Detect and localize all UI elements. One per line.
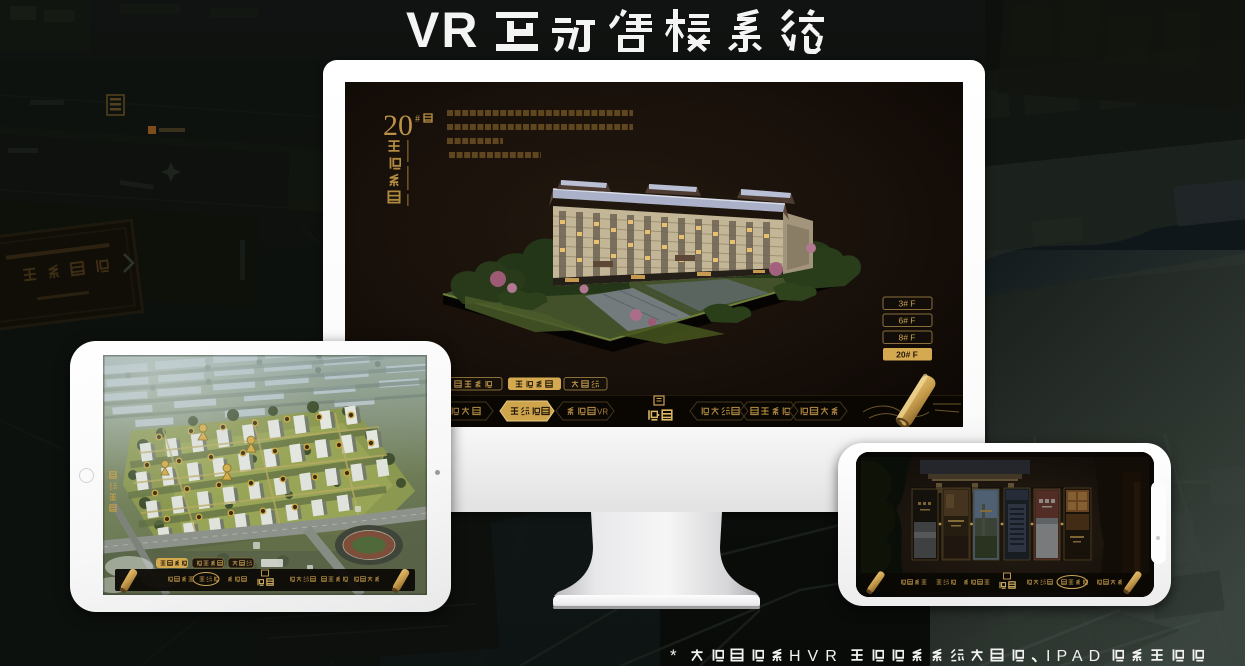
svg-text:6# F: 6# F bbox=[898, 316, 915, 326]
svg-text:20: 20 bbox=[383, 109, 413, 142]
svg-text:VR: VR bbox=[406, 2, 479, 58]
svg-text:3# F: 3# F bbox=[898, 299, 915, 309]
svg-text:HVR: HVR bbox=[789, 648, 844, 665]
svg-text:20# F: 20# F bbox=[896, 350, 918, 360]
svg-text:VR: VR bbox=[597, 408, 608, 417]
svg-text:#: # bbox=[415, 114, 420, 125]
svg-text:IPAD: IPAD bbox=[1046, 648, 1106, 665]
svg-text:8# F: 8# F bbox=[898, 333, 915, 343]
svg-text:*: * bbox=[670, 646, 677, 665]
